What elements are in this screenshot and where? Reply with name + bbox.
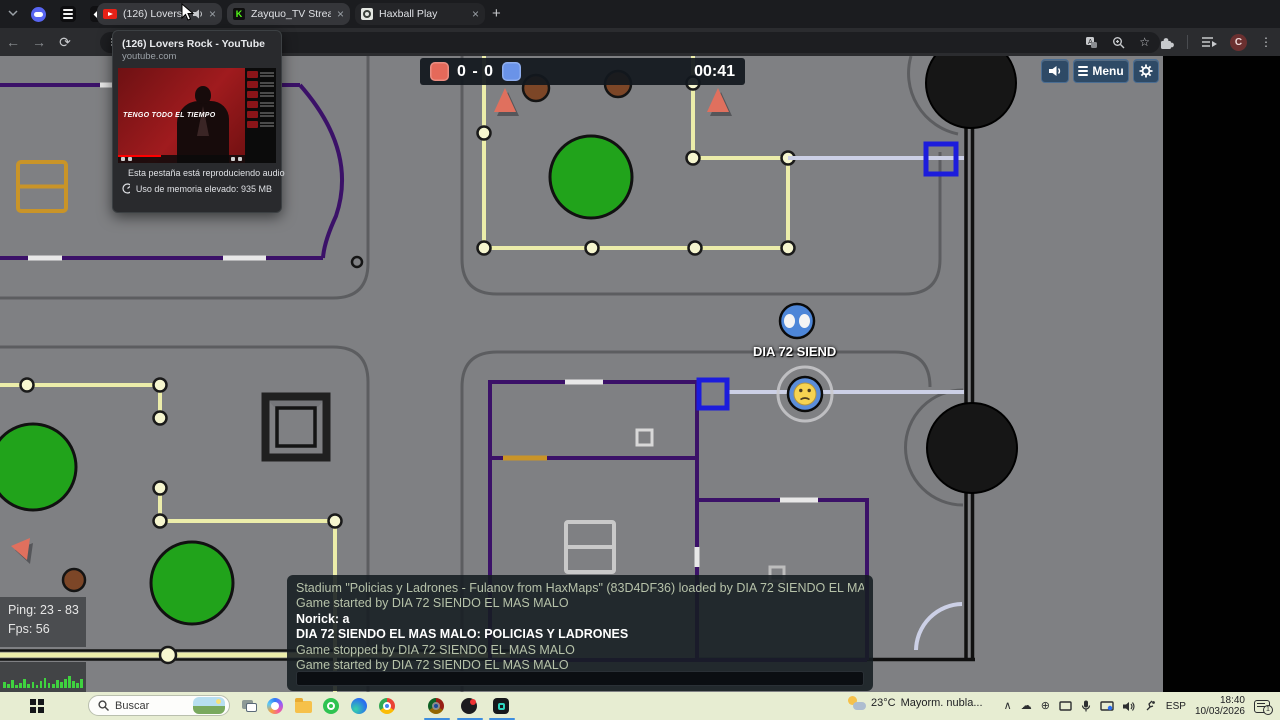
score-text: 0 - 0 [457, 63, 494, 81]
haxball-icon [361, 8, 373, 20]
plug-icon[interactable] [1145, 700, 1157, 712]
tab-kick-stream[interactable]: K Zayquo_TV Stream - Watch Live × [227, 3, 350, 25]
pit-obstacle [262, 393, 330, 458]
suggestions-sidebar [245, 68, 276, 163]
chat-message: Game started by DIA 72 SIENDO EL MAS MAL… [296, 596, 864, 611]
tray-app-icon[interactable]: ⊕ [1041, 701, 1050, 712]
tab-close-icon[interactable]: × [472, 8, 479, 20]
reload-icon[interactable]: ⟳ [52, 34, 78, 51]
dark-app-button[interactable] [489, 697, 513, 715]
chrome-dark-icon [428, 698, 444, 714]
screen-share-icon[interactable] [1100, 701, 1114, 712]
player-disc-blue [780, 304, 814, 338]
recorder-app-button[interactable] [457, 697, 481, 715]
ping-text: Ping: 23 - 83 [8, 601, 78, 620]
mini-window-icon[interactable] [1059, 701, 1072, 712]
profile-avatar[interactable]: C [1230, 34, 1247, 51]
kick-icon: K [233, 8, 245, 20]
notification-center[interactable]: 1 [1254, 700, 1270, 713]
match-timer: 00:41 [694, 63, 735, 81]
task-view-icon [242, 700, 257, 712]
bookmark-star-icon[interactable]: ☆ [1139, 35, 1150, 49]
gear-icon [1139, 64, 1153, 78]
chat-message: DIA 72 SIENDO EL MAS MALO: POLICIAS Y LA… [296, 627, 864, 642]
tab-youtube[interactable]: (126) Lovers Rock - YouTube × [97, 3, 222, 25]
chat-message: Game stopped by DIA 72 SIENDO EL MAS MAL… [296, 643, 864, 658]
pinned-tab-layers[interactable] [56, 4, 80, 24]
microphone-icon[interactable] [1081, 700, 1091, 712]
weather-temp: 23°C [871, 697, 896, 709]
preview-domain: youtube.com [113, 51, 281, 62]
building-door-dashes [565, 382, 818, 567]
memory-status-text: Uso de memoria elevado: 935 MB [136, 184, 272, 194]
video-controls [118, 155, 245, 163]
start-button[interactable] [30, 699, 44, 713]
tab-close-icon[interactable]: × [209, 8, 216, 20]
video-caption: TENGO TODO EL TIEMPO [123, 112, 215, 119]
weather-condition: Mayorm. nubla... [901, 697, 983, 709]
layers-pinned-icon [60, 6, 76, 22]
forward-icon[interactable]: → [26, 34, 52, 50]
memory-gauge-icon [122, 183, 130, 194]
tab-audio-icon[interactable] [193, 9, 203, 19]
menu-button[interactable]: Menu [1073, 59, 1129, 83]
copilot-icon [267, 698, 283, 714]
audio-status-text: Esta pestaña está reproduciendo audio [128, 168, 285, 178]
extensions-icon[interactable] [1159, 35, 1174, 50]
date-text: 10/03/2026 [1195, 706, 1245, 717]
task-view-button[interactable] [237, 697, 261, 715]
tab-close-icon[interactable]: × [337, 8, 344, 20]
new-tab-button[interactable]: + [492, 5, 501, 22]
mouse-cursor [181, 3, 194, 22]
small-ball-outline [352, 257, 362, 267]
tab-hover-preview: (126) Lovers Rock - YouTube youtube.com … [112, 30, 282, 213]
tray-chevron-icon[interactable]: ∧ [1004, 701, 1012, 712]
toolbar-separator [1187, 35, 1188, 49]
edge-icon [351, 698, 367, 714]
translate-icon[interactable]: A [1085, 36, 1098, 49]
chat-message: Norick: a [296, 612, 864, 627]
blue-square-markers [699, 144, 956, 408]
tab-title: Zayquo_TV Stream - Watch Live [251, 8, 331, 20]
chat-input[interactable] [296, 671, 864, 686]
onedrive-cloud-icon[interactable]: ☁ [1021, 701, 1032, 712]
tab-search-chevron-icon[interactable] [8, 9, 18, 17]
weather-icon [848, 696, 866, 710]
preview-thumbnail: TENGO TODO EL TIEMPO [118, 68, 276, 163]
media-controls-icon[interactable] [1201, 36, 1217, 49]
chat-message: Stadium "Policias y Ladrones - Fulanov f… [296, 581, 864, 596]
windows-taskbar: Buscar 23°C Mayorm. nubla... ∧ ☁ ⊕ [0, 692, 1280, 720]
desktop-screen: (126) Lovers Rock - YouTube × K Zayquo_T… [0, 0, 1280, 720]
chrome-profile-button[interactable] [424, 697, 448, 715]
dark-app-icon [493, 698, 509, 714]
red-team-badge [430, 62, 449, 81]
tab-haxball[interactable]: Haxball Play × [355, 3, 485, 25]
clock[interactable]: 18:40 10/03/2026 [1195, 695, 1245, 717]
volume-icon[interactable] [1123, 701, 1136, 712]
pinned-tab-discord[interactable] [26, 4, 50, 24]
tab-title: (126) Lovers Rock - YouTube [123, 8, 187, 20]
search-icon [98, 700, 109, 711]
orange-bed-icon [18, 162, 66, 211]
video-frame: TENGO TODO EL TIEMPO [118, 68, 245, 163]
chrome-icon [379, 698, 395, 714]
gray-bed-icon [566, 522, 614, 572]
system-tray: ∧ ☁ ⊕ ESP 18:40 10/03/2026 1 [1004, 692, 1280, 720]
player-name-label: DIA 72 SIEND [753, 344, 836, 359]
widgets-thumbnail[interactable] [193, 697, 225, 714]
chrome-button[interactable] [375, 697, 399, 715]
zoom-icon[interactable] [1112, 36, 1125, 49]
record-dot-icon [461, 698, 477, 714]
sound-button[interactable] [1041, 59, 1069, 83]
notification-badge: 1 [1263, 705, 1273, 715]
blue-team-badge [502, 62, 521, 81]
whatsapp-icon [323, 698, 339, 714]
hamburger-icon [1078, 66, 1088, 76]
scoreboard: 0 - 0 00:41 [420, 58, 745, 85]
file-explorer-button[interactable] [291, 697, 315, 715]
folder-icon [295, 701, 312, 713]
copilot-button[interactable] [263, 697, 287, 715]
small-item-square [637, 430, 652, 445]
taskbar-search[interactable]: Buscar [88, 695, 230, 716]
settings-button[interactable] [1133, 59, 1159, 83]
edge-button[interactable] [347, 697, 371, 715]
youtube-icon [103, 9, 117, 19]
speaker-icon [1049, 65, 1062, 77]
back-icon[interactable]: ← [0, 34, 26, 50]
perf-graph-bars [0, 662, 86, 692]
time-text: 18:40 [1220, 695, 1245, 706]
stats-overlay: Ping: 23 - 83 Fps: 56 [0, 597, 86, 647]
chat-log: Stadium "Policias y Ladrones - Fulanov f… [287, 575, 873, 691]
browser-menu-icon[interactable]: ⋮ [1260, 35, 1272, 49]
language-indicator[interactable]: ESP [1166, 701, 1186, 712]
search-placeholder: Buscar [115, 700, 187, 712]
menu-button-label: Menu [1092, 64, 1123, 78]
tab-title: Haxball Play [379, 8, 466, 20]
preview-title: (126) Lovers Rock - YouTube [113, 31, 281, 51]
letterbox-panel [1163, 56, 1280, 692]
whatsapp-button[interactable] [319, 697, 343, 715]
discord-pinned-icon [31, 7, 46, 22]
weather-widget[interactable]: 23°C Mayorm. nubla... [848, 696, 983, 710]
fps-text: Fps: 56 [8, 620, 78, 639]
